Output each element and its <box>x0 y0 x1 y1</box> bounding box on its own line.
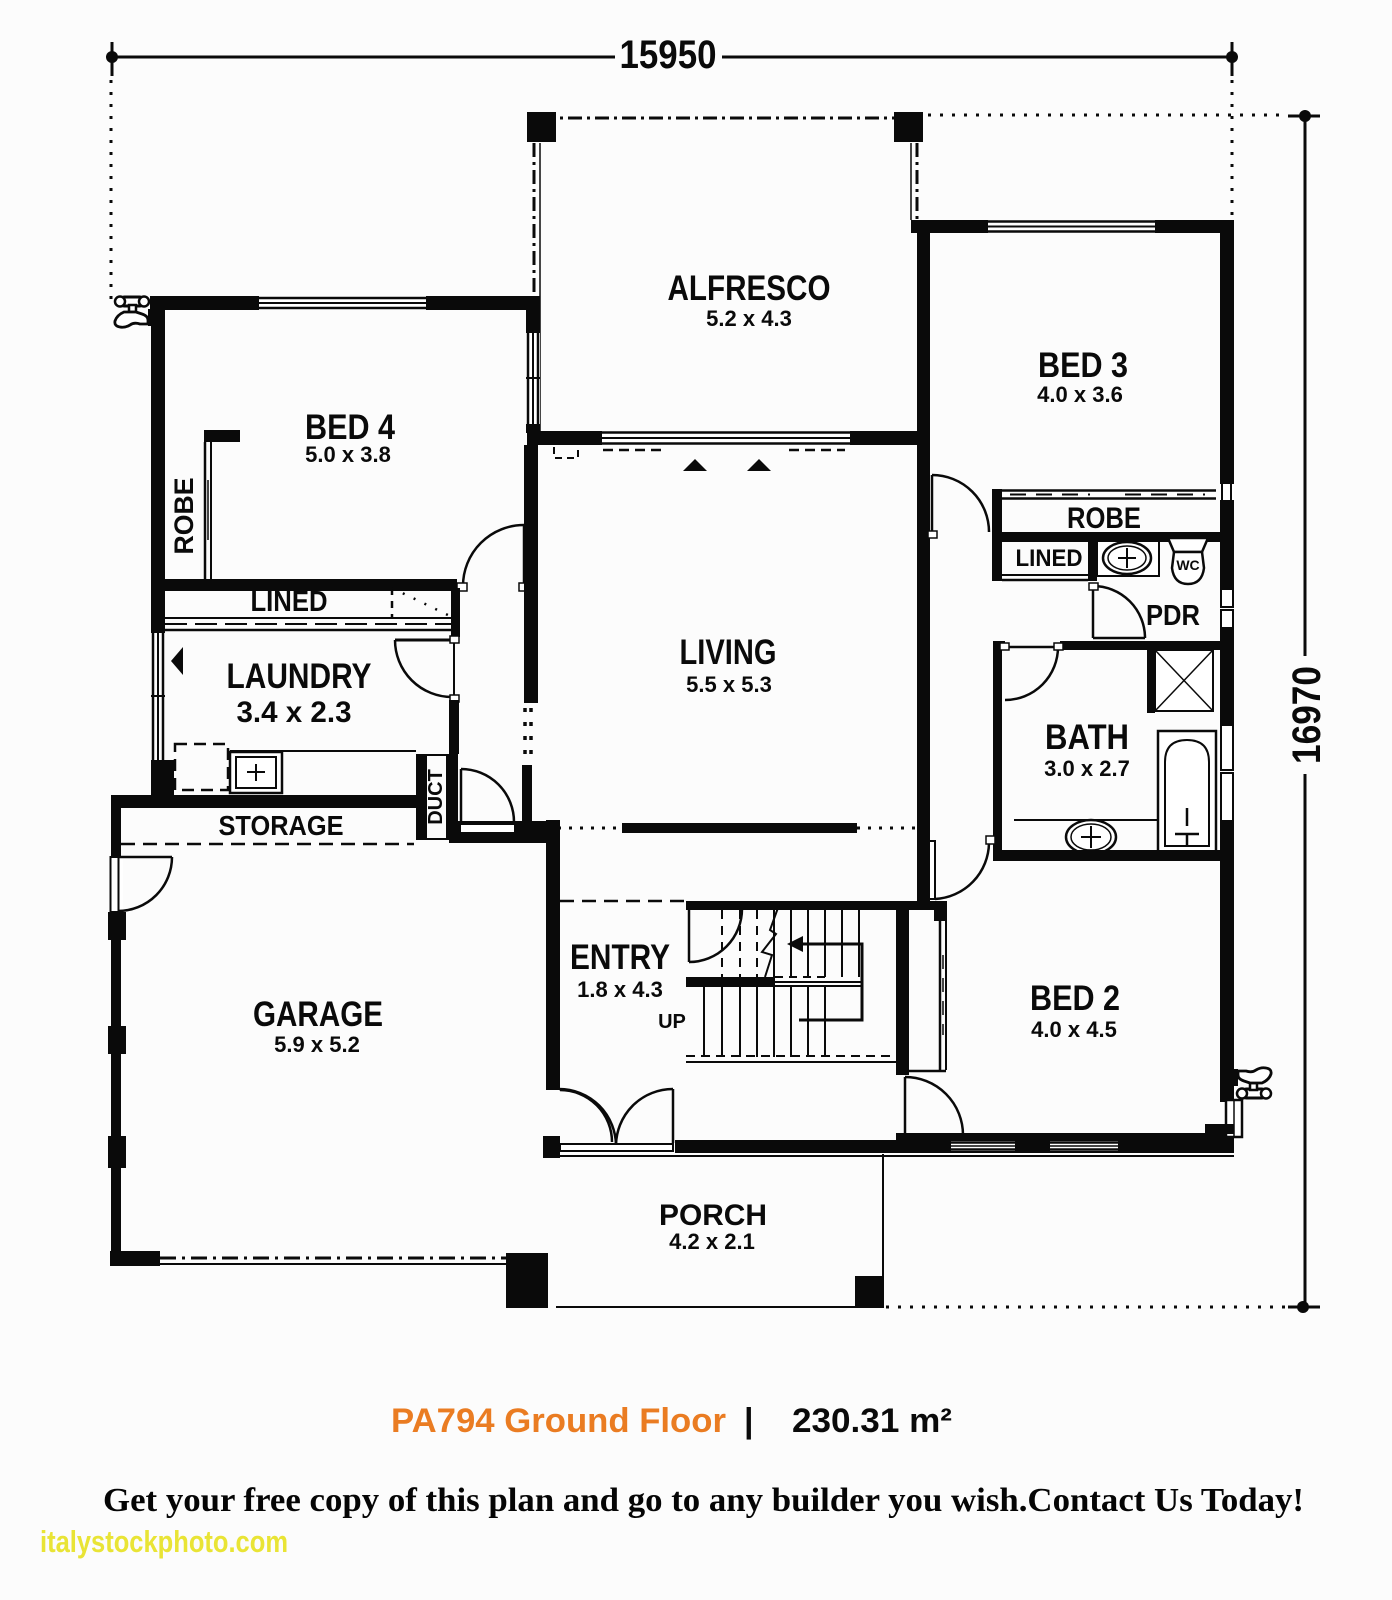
svg-text:DUCT: DUCT <box>425 769 447 825</box>
svg-text:PORCH: PORCH <box>659 1199 767 1232</box>
svg-text:5.2 x 4.3: 5.2 x 4.3 <box>706 306 792 331</box>
svg-text:LINED: LINED <box>251 586 328 618</box>
svg-text:ROBE: ROBE <box>1067 502 1141 535</box>
svg-text:4.0 x 3.6: 4.0 x 3.6 <box>1037 382 1123 407</box>
svg-text:3.0 x 2.7: 3.0 x 2.7 <box>1044 756 1130 781</box>
svg-text:5.5 x 5.3: 5.5 x 5.3 <box>686 672 772 697</box>
svg-text:4.2 x 2.1: 4.2 x 2.1 <box>669 1229 755 1254</box>
svg-text:3.4 x 2.3: 3.4 x 2.3 <box>237 696 352 729</box>
svg-text:|: | <box>744 1402 754 1440</box>
svg-text:1.8 x 4.3: 1.8 x 4.3 <box>577 977 663 1002</box>
svg-text:5.9 x 5.2: 5.9 x 5.2 <box>274 1032 360 1057</box>
svg-text:ALFRESCO: ALFRESCO <box>668 269 831 308</box>
svg-text:Get your free copy of this pla: Get your free copy of this plan and go t… <box>103 1482 1304 1519</box>
svg-text:15950: 15950 <box>620 33 717 77</box>
svg-text:4.0 x 4.5: 4.0 x 4.5 <box>1031 1017 1117 1042</box>
svg-text:WC: WC <box>1176 557 1199 573</box>
svg-text:16970: 16970 <box>1285 666 1329 764</box>
svg-text:italystockphoto.com: italystockphoto.com <box>40 1524 288 1559</box>
svg-text:ROBE: ROBE <box>169 478 199 555</box>
svg-text:230.31 m²: 230.31 m² <box>792 1402 952 1440</box>
svg-text:5.0 x 3.8: 5.0 x 3.8 <box>305 442 391 467</box>
svg-text:PDR: PDR <box>1146 600 1200 632</box>
svg-text:GARAGE: GARAGE <box>253 995 383 1034</box>
svg-text:LIVING: LIVING <box>680 633 777 672</box>
svg-text:ENTRY: ENTRY <box>570 938 670 977</box>
svg-text:UP: UP <box>658 1011 686 1033</box>
svg-text:LAUNDRY: LAUNDRY <box>227 657 372 696</box>
svg-text:BATH: BATH <box>1045 718 1129 757</box>
svg-text:STORAGE: STORAGE <box>219 810 344 841</box>
svg-text:LINED: LINED <box>1016 545 1083 572</box>
svg-text:PA794 Ground Floor: PA794 Ground Floor <box>391 1402 726 1440</box>
svg-text:BED 2: BED 2 <box>1030 979 1120 1018</box>
svg-text:BED 3: BED 3 <box>1038 346 1128 385</box>
